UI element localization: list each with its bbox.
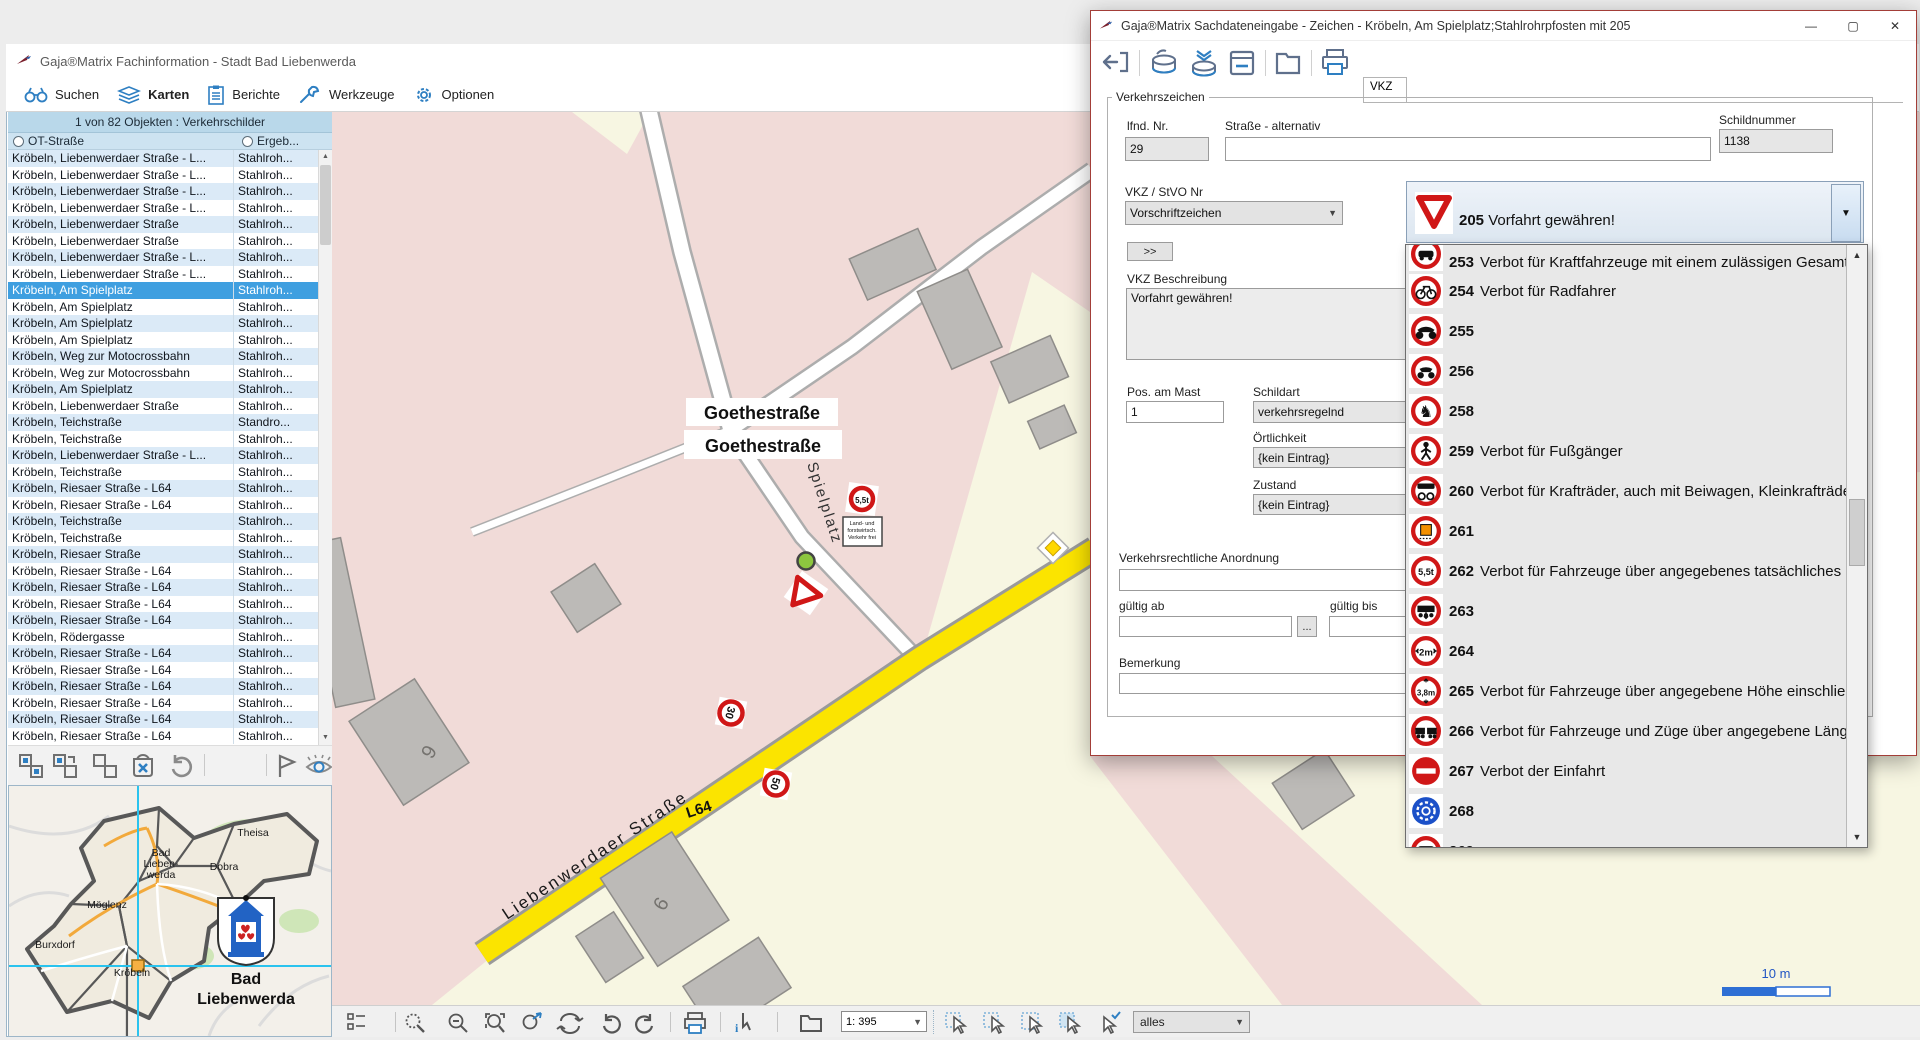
chevron-down-icon: ▼ bbox=[1235, 1017, 1244, 1027]
sign-268-icon bbox=[1409, 794, 1443, 828]
vkz-option-258[interactable]: ♞258 bbox=[1406, 391, 1847, 431]
list-cell-ergebnis: Stahlroh... bbox=[233, 282, 293, 299]
list-cell-strasse: Kröbeln, Am Spielplatz bbox=[8, 315, 233, 332]
list-cell-ergebnis: Stahlroh... bbox=[233, 398, 293, 415]
toolbar-separator bbox=[266, 754, 267, 776]
vkz-option-number: 254 bbox=[1449, 283, 1474, 300]
expand-button[interactable]: >> bbox=[1127, 242, 1173, 261]
city-label-line1: Bad bbox=[231, 971, 261, 988]
list-cell-ergebnis: Stahlroh... bbox=[233, 431, 293, 448]
street-label-goethestrasse-1: Goethestraße bbox=[704, 403, 820, 423]
list-row[interactable]: Kröbeln, Liebenwerdaer Straße - L...Stah… bbox=[8, 167, 318, 184]
vkz-option-number: 253 bbox=[1449, 254, 1474, 271]
sign-30-marker[interactable]: 30 bbox=[715, 697, 747, 729]
list-cell-ergebnis: Stahlroh... bbox=[233, 596, 293, 613]
list-cell-strasse: Kröbeln, Teichstraße bbox=[8, 530, 233, 547]
list-cell-strasse: Kröbeln, Teichstraße bbox=[8, 464, 233, 481]
object-count-header: 1 von 82 Objekten : Verkehrschilder bbox=[8, 112, 332, 133]
list-row[interactable]: Kröbeln, Liebenwerdaer Straße - L...Stah… bbox=[8, 249, 318, 266]
sign-267-icon bbox=[1409, 754, 1443, 788]
gueltig-ab-input[interactable] bbox=[1119, 616, 1292, 637]
list-cell-ergebnis: Stahlroh... bbox=[233, 216, 293, 233]
list-cell-strasse: Kröbeln, Teichstraße bbox=[8, 431, 233, 448]
vkz-option-number: 258 bbox=[1449, 403, 1474, 420]
vkz-option-description: Verbot für Krafträder, auch mit Beiwagen… bbox=[1480, 483, 1847, 500]
list-cell-strasse: Kröbeln, Liebenwerdaer Straße - L... bbox=[8, 150, 233, 167]
select-box-cursor-button[interactable] bbox=[1020, 1011, 1046, 1040]
popup-scroll-up-icon[interactable]: ▲ bbox=[1847, 245, 1867, 265]
minimize-button[interactable]: — bbox=[1790, 11, 1832, 40]
lfnd-nr-label: lfnd. Nr. bbox=[1127, 119, 1168, 133]
list-cell-ergebnis: Stahlroh... bbox=[233, 447, 293, 464]
sign-254-icon bbox=[1409, 274, 1443, 308]
svg-text:2m: 2m bbox=[1419, 647, 1433, 658]
menu-berichte[interactable]: Berichte bbox=[207, 85, 280, 105]
list-cell-ergebnis: Stahlroh... bbox=[233, 678, 293, 695]
list-cell-ergebnis: Stahlroh... bbox=[233, 365, 293, 382]
svg-text:Land- und: Land- und bbox=[850, 521, 875, 527]
vkz-combo-text: 205 Vorfahrt gewähren! bbox=[1459, 212, 1615, 229]
dialog-titlebar[interactable]: Gaja®Matrix Sachdateneingabe - Zeichen -… bbox=[1091, 11, 1916, 41]
list-cell-ergebnis: Stahlroh... bbox=[233, 150, 293, 167]
schildart-label: Schildart bbox=[1253, 385, 1300, 399]
vkz-stvo-label: VKZ / StVO Nr bbox=[1125, 185, 1203, 199]
zustand-label: Zustand bbox=[1253, 478, 1296, 492]
anordnung-input[interactable] bbox=[1119, 569, 1407, 591]
chevron-down-icon: ▼ bbox=[913, 1017, 922, 1027]
list-cell-strasse: Kröbeln, Rödergasse bbox=[8, 629, 233, 646]
list-cell-strasse: Kröbeln, Liebenwerdaer Straße - L... bbox=[8, 167, 233, 184]
list-row[interactable]: Kröbeln, TeichstraßeStahlroh... bbox=[8, 513, 318, 530]
select-none-button[interactable] bbox=[92, 753, 118, 784]
sign-269-icon bbox=[1409, 834, 1443, 848]
sign-258-icon: ♞ bbox=[1409, 394, 1443, 428]
folder-button[interactable] bbox=[798, 1011, 824, 1040]
vkz-beschreibung-textarea[interactable]: Vorfahrt gewähren! bbox=[1126, 288, 1407, 360]
vkz-option-number: 259 bbox=[1449, 443, 1474, 460]
vkz-option-number: 260 bbox=[1449, 483, 1474, 500]
combo-dropdown-button[interactable]: ▼ bbox=[1831, 184, 1861, 242]
pos-am-mast-label: Pos. am Mast bbox=[1127, 385, 1200, 399]
list-row[interactable]: Kröbeln, Riesaer Straße - L64Stahlroh... bbox=[8, 579, 318, 596]
select-invert-button[interactable] bbox=[52, 753, 78, 784]
list-row[interactable]: Kröbeln, Am SpielplatzStahlroh... bbox=[8, 332, 318, 349]
map-toolbar: i 1: 395 ▼ alles ▼ bbox=[332, 1005, 1920, 1037]
popup-scroll-down-icon[interactable]: ▼ bbox=[1847, 827, 1867, 847]
svg-text:5,5t: 5,5t bbox=[855, 496, 869, 505]
undo-selection-button[interactable] bbox=[168, 753, 194, 784]
list-row[interactable]: Kröbeln, Riesaer Straße - L64Stahlroh... bbox=[8, 612, 318, 629]
wrench-icon bbox=[298, 85, 322, 105]
select-cursor-button[interactable] bbox=[944, 1011, 970, 1040]
screen: Gaja®Matrix Fachinformation - Stadt Bad … bbox=[0, 0, 1920, 1040]
list-cell-ergebnis: Stahlroh... bbox=[233, 546, 293, 563]
visibility-button[interactable] bbox=[304, 753, 334, 784]
overview-label-dobra: Dobra bbox=[210, 861, 239, 873]
list-scrollbar[interactable]: ▲ ▼ bbox=[318, 150, 332, 745]
list-cell-strasse: Kröbeln, Riesaer Straße - L64 bbox=[8, 480, 233, 497]
vkz-option-number: 264 bbox=[1449, 643, 1474, 660]
list-cell-strasse: Kröbeln, Riesaer Straße - L64 bbox=[8, 612, 233, 629]
sign-253-icon bbox=[1409, 245, 1443, 271]
anordnung-label: Verkehrsrechtliche Anordnung bbox=[1119, 551, 1279, 565]
list-row[interactable]: Kröbeln, Liebenwerdaer Straße - L...Stah… bbox=[8, 447, 318, 464]
undo-button[interactable] bbox=[599, 1011, 623, 1040]
popup-scrollbar[interactable]: ▲ ▼ bbox=[1846, 245, 1867, 847]
dialog-title: Gaja®Matrix Sachdateneingabe - Zeichen -… bbox=[1121, 19, 1631, 33]
vkz-option-number: 262 bbox=[1449, 563, 1474, 580]
vkz-option-267[interactable]: 267Verbot der Einfahrt bbox=[1406, 751, 1847, 791]
bemerkung-label: Bemerkung bbox=[1119, 656, 1180, 670]
gear-icon bbox=[413, 85, 435, 105]
menu-optionen-label: Optionen bbox=[442, 87, 495, 102]
lfnd-nr-field[interactable]: 29 bbox=[1125, 137, 1209, 161]
list-cell-strasse: Kröbeln, Riesaer Straße - L64 bbox=[8, 497, 233, 514]
list-cell-strasse: Kröbeln, Riesaer Straße - L64 bbox=[8, 695, 233, 712]
list-cell-strasse: Kröbeln, Riesaer Straße - L64 bbox=[8, 728, 233, 745]
select-confirm-cursor-button[interactable] bbox=[1096, 1011, 1122, 1040]
list-column-header: OT-Straße Ergeb... bbox=[8, 133, 332, 150]
schildart-field[interactable]: verkehrsregelnd bbox=[1253, 401, 1407, 423]
redo-button[interactable] bbox=[633, 1011, 657, 1040]
strasse-alternativ-label: Straße - alternativ bbox=[1225, 119, 1320, 133]
vkz-combo[interactable]: 205 Vorfahrt gewähren! ▼ bbox=[1406, 181, 1864, 243]
list-cell-ergebnis: Stahlroh... bbox=[233, 695, 293, 712]
list-cell-ergebnis: Stahlroh... bbox=[233, 332, 293, 349]
zoom-pan-button[interactable] bbox=[520, 1011, 544, 1040]
list-row[interactable]: Kröbeln, Riesaer Straße - L64Stahlroh... bbox=[8, 596, 318, 613]
binoculars-icon bbox=[24, 85, 48, 105]
save-record-button[interactable] bbox=[1147, 48, 1181, 83]
list-row[interactable]: Kröbeln, Liebenwerdaer StraßeStahlroh... bbox=[8, 216, 318, 233]
sign-266-icon bbox=[1409, 714, 1443, 748]
list-row[interactable]: Kröbeln, Riesaer Straße - L64Stahlroh... bbox=[8, 645, 318, 662]
vkz-option-description: Verbot für Fahrzeuge und Züge über angeg… bbox=[1480, 723, 1847, 740]
toolbar-separator bbox=[204, 754, 205, 776]
vkz-option-number: 267 bbox=[1449, 763, 1474, 780]
map-scale-input[interactable]: 1: 395 ▼ bbox=[841, 1011, 927, 1032]
menu-suchen[interactable]: Suchen bbox=[24, 85, 99, 105]
zoom-out-button[interactable] bbox=[446, 1011, 470, 1040]
vkz-beschreibung-label: VKZ Beschreibung bbox=[1127, 272, 1227, 286]
list-cell-strasse: Kröbeln, Am Spielplatz bbox=[8, 282, 233, 299]
list-row[interactable]: Kröbeln, Riesaer Straße - L64Stahlroh... bbox=[8, 678, 318, 695]
list-row[interactable]: Kröbeln, Am SpielplatzStahlroh... bbox=[8, 315, 318, 332]
sign-259-icon bbox=[1409, 434, 1443, 468]
sign-261-icon bbox=[1409, 514, 1443, 548]
oertlichkeit-label: Örtlichkeit bbox=[1253, 431, 1306, 445]
svg-text:forstwirtsch.: forstwirtsch. bbox=[847, 528, 877, 534]
chevron-down-icon: ▼ bbox=[1328, 208, 1337, 218]
select-add-cursor-button[interactable] bbox=[982, 1011, 1008, 1040]
list-row[interactable]: Kröbeln, Weg zur MotocrossbahnStahlroh..… bbox=[8, 365, 318, 382]
vkz-option-description: Verbot für Fahrzeuge über angegebene Höh… bbox=[1480, 683, 1847, 700]
list-cell-ergebnis: Stahlroh... bbox=[233, 183, 293, 200]
svg-text:♞: ♞ bbox=[1419, 402, 1433, 421]
list-cell-strasse: Kröbeln, Riesaer Straße - L64 bbox=[8, 678, 233, 695]
sign-50-marker[interactable]: 50 bbox=[760, 768, 792, 800]
select-filled-cursor-button[interactable] bbox=[1058, 1011, 1084, 1040]
radio-ot-strasse[interactable] bbox=[13, 136, 24, 147]
report-icon bbox=[207, 85, 225, 105]
list-row[interactable]: Kröbeln, TeichstraßeStandro... bbox=[8, 414, 318, 431]
strasse-alternativ-input[interactable] bbox=[1225, 137, 1711, 161]
object-list[interactable]: Kröbeln, Liebenwerdaer Straße - L...Stah… bbox=[8, 150, 318, 745]
list-cell-ergebnis: Stahlroh... bbox=[233, 645, 293, 662]
list-cell-strasse: Kröbeln, Teichstraße bbox=[8, 414, 233, 431]
svg-text:3,8m: 3,8m bbox=[1417, 688, 1435, 697]
vkz-option-number: 266 bbox=[1449, 723, 1474, 740]
overview-label-werda: werda bbox=[146, 869, 176, 881]
list-cell-ergebnis: Stahlroh... bbox=[233, 497, 293, 514]
list-row[interactable]: Kröbeln, Riesaer Straße - L64Stahlroh... bbox=[8, 695, 318, 712]
radio-ergebnis[interactable] bbox=[242, 136, 253, 147]
layer-filter-select[interactable]: alles ▼ bbox=[1133, 1011, 1250, 1033]
list-cell-strasse: Kröbeln, Riesaer Straße - L64 bbox=[8, 662, 233, 679]
close-button[interactable]: ✕ bbox=[1874, 11, 1916, 40]
vkz-dropdown-list[interactable]: 253Verbot für Kraftfahrzeuge mit einem z… bbox=[1406, 245, 1847, 848]
list-cell-ergebnis: Stahlroh... bbox=[233, 266, 293, 283]
list-row[interactable]: Kröbeln, TeichstraßeStahlroh... bbox=[8, 530, 318, 547]
list-cell-strasse: Kröbeln, Liebenwerdaer Straße bbox=[8, 233, 233, 250]
vkz-option-264[interactable]: 2m264 bbox=[1406, 631, 1847, 671]
column-ot-strasse: OT-Straße bbox=[28, 134, 84, 148]
list-row[interactable]: Kröbeln, Liebenwerdaer Straße - L...Stah… bbox=[8, 266, 318, 283]
vkz-option-260[interactable]: 260Verbot für Krafträder, auch mit Beiwa… bbox=[1406, 471, 1847, 511]
street-label-goethestrasse-2: Goethestraße bbox=[705, 436, 821, 456]
menu-karten-label: Karten bbox=[148, 87, 189, 102]
groupbox-label: Verkehrszeichen bbox=[1112, 90, 1209, 104]
list-row[interactable]: Kröbeln, Riesaer Straße - L64Stahlroh... bbox=[8, 497, 318, 514]
maximize-button[interactable]: ▢ bbox=[1832, 11, 1874, 40]
menu-berichte-label: Berichte bbox=[232, 87, 280, 102]
selection-toolbar bbox=[8, 745, 332, 785]
list-cell-ergebnis: Stahlroh... bbox=[233, 299, 293, 316]
list-cell-strasse: Kröbeln, Riesaer Straße - L64 bbox=[8, 563, 233, 580]
vkz-kategorie-select[interactable]: Vorschriftzeichen ▼ bbox=[1125, 201, 1343, 225]
list-row[interactable]: Kröbeln, Riesaer Straße - L64Stahlroh... bbox=[8, 662, 318, 679]
sign-256-icon bbox=[1409, 354, 1443, 388]
schildnummer-label: Schildnummer bbox=[1719, 113, 1796, 127]
list-cell-strasse: Kröbeln, Liebenwerdaer Straße - L... bbox=[8, 200, 233, 217]
sign-260-icon bbox=[1409, 474, 1443, 508]
svg-text:i: i bbox=[735, 1021, 739, 1035]
vkz-option-254[interactable]: 254Verbot für Radfahrer bbox=[1406, 271, 1847, 311]
pos-am-mast-input[interactable]: 1 bbox=[1126, 401, 1224, 423]
vkz-option-description: Verbot für Fahrzeuge über angegebenes ta… bbox=[1480, 563, 1847, 580]
vkz-kategorie-value: Vorschriftzeichen bbox=[1130, 206, 1221, 220]
list-row[interactable]: Kröbeln, Liebenwerdaer StraßeStahlroh... bbox=[8, 233, 318, 250]
delete-selection-button[interactable] bbox=[130, 753, 156, 784]
list-cell-ergebnis: Stahlroh... bbox=[233, 200, 293, 217]
vkz-combo-number: 205 bbox=[1459, 212, 1484, 229]
sign-263-icon bbox=[1409, 594, 1443, 628]
gueltig-ab-label: gültig ab bbox=[1119, 599, 1164, 613]
vkz-option-259[interactable]: 259Verbot für Fußgänger bbox=[1406, 431, 1847, 471]
sign-264-icon: 2m bbox=[1409, 634, 1443, 668]
list-row[interactable]: Kröbeln, TeichstraßeStahlroh... bbox=[8, 431, 318, 448]
vkz-option-description: Verbot der Einfahrt bbox=[1480, 763, 1605, 780]
list-cell-strasse: Kröbeln, Am Spielplatz bbox=[8, 332, 233, 349]
list-row[interactable]: Kröbeln, Am SpielplatzStahlroh... bbox=[8, 381, 318, 398]
back-exit-button[interactable] bbox=[1101, 48, 1131, 81]
sign-265-icon: 3,8m bbox=[1409, 674, 1443, 708]
vkz-option-description: Verbot für Radfahrer bbox=[1480, 283, 1616, 300]
list-cell-ergebnis: Stahlroh... bbox=[233, 513, 293, 530]
oertlichkeit-field[interactable]: {kein Eintrag} bbox=[1253, 447, 1407, 468]
reload-record-button[interactable] bbox=[1187, 48, 1221, 83]
zoom-window-button[interactable] bbox=[403, 1011, 427, 1040]
list-row[interactable]: Kröbeln, Weg zur MotocrossbahnStahlroh..… bbox=[8, 348, 318, 365]
list-row[interactable]: Kröbeln, Riesaer Straße - L64Stahlroh... bbox=[8, 480, 318, 497]
list-row[interactable]: Kröbeln, TeichstraßeStahlroh... bbox=[8, 464, 318, 481]
map-scale-value: 1: 395 bbox=[846, 1016, 877, 1028]
vkz-option-263[interactable]: 263 bbox=[1406, 591, 1847, 631]
list-cell-strasse: Kröbeln, Am Spielplatz bbox=[8, 299, 233, 316]
list-row[interactable]: Kröbeln, RödergasseStahlroh... bbox=[8, 629, 318, 646]
city-label-line2: Liebenwerda bbox=[197, 991, 295, 1008]
gueltig-bis-input[interactable] bbox=[1329, 616, 1409, 637]
main-window-title: Gaja®Matrix Fachinformation - Stadt Bad … bbox=[40, 54, 356, 69]
list-cell-strasse: Kröbeln, Liebenwerdaer Straße bbox=[8, 398, 233, 415]
list-cell-ergebnis: Stahlroh... bbox=[233, 579, 293, 596]
overview-map[interactable]: Theisa Bad Lieben- werda Dobra Möglenz B… bbox=[8, 785, 332, 1037]
list-cell-ergebnis: Stahlroh... bbox=[233, 464, 293, 481]
scroll-down-icon[interactable]: ▼ bbox=[319, 731, 332, 745]
list-cell-strasse: Kröbeln, Liebenwerdaer Straße - L... bbox=[8, 183, 233, 200]
legend-button[interactable] bbox=[346, 1011, 368, 1038]
list-cell-strasse: Kröbeln, Liebenwerdaer Straße - L... bbox=[8, 266, 233, 283]
overview-label-kroebeln: Kröbeln bbox=[114, 967, 150, 979]
svg-text:5,5t: 5,5t bbox=[1418, 567, 1434, 577]
list-row[interactable]: Kröbeln, Riesaer Straße - L64Stahlroh... bbox=[8, 728, 318, 745]
menu-suchen-label: Suchen bbox=[55, 87, 99, 102]
list-cell-strasse: Kröbeln, Riesaer Straße - L64 bbox=[8, 711, 233, 728]
list-cell-ergebnis: Stahlroh... bbox=[233, 381, 293, 398]
list-cell-ergebnis: Stahlroh... bbox=[233, 612, 293, 629]
vkz-option-265[interactable]: 3,8m265Verbot für Fahrzeuge über angegeb… bbox=[1406, 671, 1847, 711]
vkz-option-number: 255 bbox=[1449, 323, 1474, 340]
select-all-button[interactable] bbox=[18, 753, 44, 784]
menu-werkzeuge[interactable]: Werkzeuge bbox=[298, 85, 395, 105]
vkz-option-269[interactable]: 269 bbox=[1406, 831, 1847, 848]
vkz-option-number: 268 bbox=[1449, 803, 1474, 820]
gaja-logo-icon bbox=[1099, 19, 1113, 33]
layers-icon bbox=[117, 85, 141, 105]
info-cursor-button[interactable]: i bbox=[731, 1011, 757, 1040]
list-cell-strasse: Kröbeln, Teichstraße bbox=[8, 513, 233, 530]
list-cell-strasse: Kröbeln, Weg zur Motocrossbahn bbox=[8, 365, 233, 382]
list-row[interactable]: Kröbeln, Liebenwerdaer Straße - L...Stah… bbox=[8, 183, 318, 200]
vkz-option-description: Verbot für Fußgänger bbox=[1480, 443, 1623, 460]
print-map-button[interactable] bbox=[682, 1011, 708, 1040]
scroll-up-icon[interactable]: ▲ bbox=[319, 150, 332, 164]
coat-of-arms bbox=[218, 895, 274, 965]
vkz-option-262[interactable]: 5,5t262Verbot für Fahrzeuge über angegeb… bbox=[1406, 551, 1847, 591]
gaja-logo-icon bbox=[16, 53, 32, 69]
overview-label-theisa: Theisa bbox=[237, 827, 269, 839]
list-row[interactable]: Kröbeln, Liebenwerdaer Straße - L...Stah… bbox=[8, 150, 318, 167]
scroll-thumb[interactable] bbox=[320, 165, 331, 245]
form-view-button[interactable] bbox=[1227, 48, 1257, 83]
list-cell-ergebnis: Standro... bbox=[233, 414, 290, 431]
zustand-field[interactable]: {kein Eintrag} bbox=[1253, 494, 1407, 515]
vkz-option-268[interactable]: 268 bbox=[1406, 791, 1847, 831]
sign-262-icon: 5,5t bbox=[1409, 554, 1443, 588]
list-cell-strasse: Kröbeln, Riesaer Straße - L64 bbox=[8, 645, 233, 662]
vkz-dropdown-popup: 253Verbot für Kraftfahrzeuge mit einem z… bbox=[1405, 244, 1868, 848]
sign-255-icon bbox=[1409, 314, 1443, 348]
gueltig-bis-label: gültig bis bbox=[1330, 599, 1377, 613]
list-cell-strasse: Kröbeln, Liebenwerdaer Straße bbox=[8, 216, 233, 233]
vkz-option-number: 256 bbox=[1449, 363, 1474, 380]
flag-button[interactable] bbox=[274, 753, 300, 784]
refresh-button[interactable] bbox=[556, 1011, 584, 1040]
list-cell-strasse: Kröbeln, Riesaer Straße bbox=[8, 546, 233, 563]
vkz-option-number: 263 bbox=[1449, 603, 1474, 620]
vkz-option-number: 261 bbox=[1449, 523, 1474, 540]
list-cell-strasse: Kröbeln, Weg zur Motocrossbahn bbox=[8, 348, 233, 365]
vkz-option-number: 269 bbox=[1449, 843, 1474, 849]
zoom-extent-button[interactable] bbox=[483, 1011, 507, 1040]
list-row[interactable]: Kröbeln, Riesaer Straße - L64Stahlroh... bbox=[8, 711, 318, 728]
selected-object-marker[interactable] bbox=[798, 553, 815, 570]
vkz-option-description: Verbot für Kraftfahrzeuge mit einem zulä… bbox=[1480, 254, 1847, 271]
list-cell-ergebnis: Stahlroh... bbox=[233, 480, 293, 497]
list-cell-ergebnis: Stahlroh... bbox=[233, 662, 293, 679]
popup-scroll-thumb[interactable] bbox=[1849, 499, 1865, 566]
list-row[interactable]: Kröbeln, Riesaer StraßeStahlroh... bbox=[8, 546, 318, 563]
list-cell-ergebnis: Stahlroh... bbox=[233, 530, 293, 547]
date-browse-button[interactable]: ... bbox=[1297, 616, 1317, 637]
list-cell-ergebnis: Stahlroh... bbox=[233, 233, 293, 250]
vkz-option-253[interactable]: 253Verbot für Kraftfahrzeuge mit einem z… bbox=[1406, 245, 1847, 271]
list-cell-ergebnis: Stahlroh... bbox=[233, 711, 293, 728]
list-row[interactable]: Kröbeln, Am SpielplatzStahlroh... bbox=[8, 299, 318, 316]
list-cell-strasse: Kröbeln, Am Spielplatz bbox=[8, 381, 233, 398]
vkz-option-261[interactable]: 261 bbox=[1406, 511, 1847, 551]
schildnummer-field[interactable]: 1138 bbox=[1719, 129, 1833, 153]
column-ergebnis: Ergeb... bbox=[257, 134, 299, 148]
bemerkung-input[interactable] bbox=[1119, 673, 1407, 694]
menu-werkzeuge-label: Werkzeuge bbox=[329, 87, 395, 102]
vkz-combo-desc: Vorfahrt gewähren! bbox=[1484, 212, 1615, 229]
list-cell-ergebnis: Stahlroh... bbox=[233, 315, 293, 332]
list-row[interactable]: Kröbeln, Liebenwerdaer StraßeStahlroh... bbox=[8, 398, 318, 415]
list-cell-strasse: Kröbeln, Riesaer Straße - L64 bbox=[8, 596, 233, 613]
list-row[interactable]: Kröbeln, Am SpielplatzStahlroh... bbox=[8, 282, 318, 299]
scale-label: 10 m bbox=[1762, 966, 1791, 981]
list-row[interactable]: Kröbeln, Riesaer Straße - L64Stahlroh... bbox=[8, 563, 318, 580]
sign-205-icon bbox=[1415, 192, 1453, 234]
list-cell-ergebnis: Stahlroh... bbox=[233, 629, 293, 646]
print-record-button[interactable] bbox=[1319, 48, 1351, 83]
list-cell-ergebnis: Stahlroh... bbox=[233, 728, 293, 745]
list-row[interactable]: Kröbeln, Liebenwerdaer Straße - L...Stah… bbox=[8, 200, 318, 217]
overview-label-moeglenz: Möglenz bbox=[87, 899, 127, 911]
list-cell-ergebnis: Stahlroh... bbox=[233, 348, 293, 365]
folder-open-button[interactable] bbox=[1273, 48, 1303, 83]
layer-filter-value: alles bbox=[1140, 1015, 1165, 1029]
list-cell-strasse: Kröbeln, Liebenwerdaer Straße - L... bbox=[8, 249, 233, 266]
vkz-option-255[interactable]: 255 bbox=[1406, 311, 1847, 351]
menu-karten[interactable]: Karten bbox=[117, 85, 189, 105]
vkz-option-number: 265 bbox=[1449, 683, 1474, 700]
vkz-option-266[interactable]: 266Verbot für Fahrzeuge und Züge über an… bbox=[1406, 711, 1847, 751]
menu-optionen[interactable]: Optionen bbox=[413, 85, 495, 105]
vkz-option-256[interactable]: 256 bbox=[1406, 351, 1847, 391]
list-cell-strasse: Kröbeln, Liebenwerdaer Straße - L... bbox=[8, 447, 233, 464]
